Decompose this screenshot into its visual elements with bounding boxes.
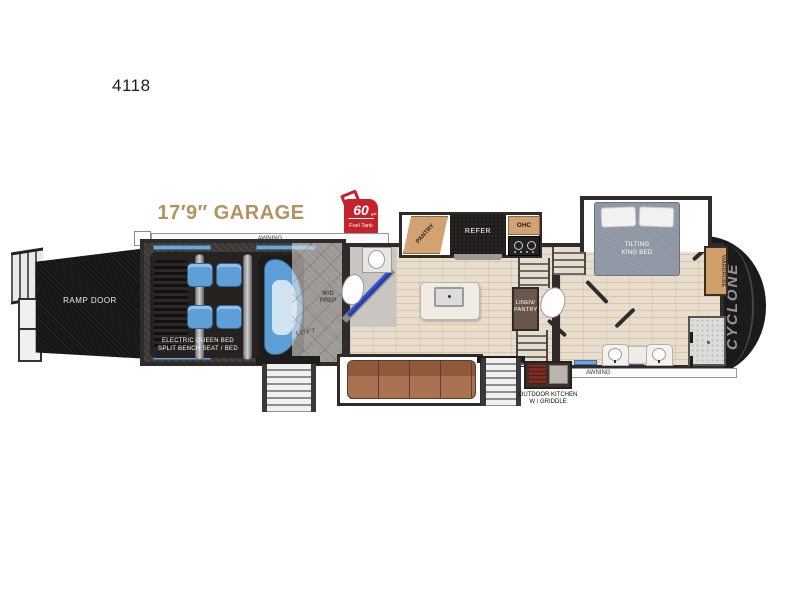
fuel-can-body: 60 gal Fuel Tank: [344, 199, 378, 235]
burner: [514, 241, 523, 250]
bedroom-window: [574, 360, 597, 365]
stairs-upper: [518, 258, 550, 288]
pantry-label: PANTRY: [409, 216, 442, 252]
outdoor-counter: [549, 365, 568, 384]
electric-bed-label: ELECTRIC QUEEN BED SPLIT BENCH SEAT / BE…: [140, 337, 256, 353]
ohc-label: OHC: [509, 217, 539, 234]
floorplan-canvas: 4118 17′9″ GARAGE 60 gal Fuel Tank AWNIN…: [0, 0, 800, 600]
sofa-back: [348, 361, 475, 376]
refer-base: [454, 254, 502, 260]
fuel-tank-icon: 60 gal Fuel Tank: [341, 191, 381, 236]
vanity-center-cabinet: [628, 346, 647, 364]
garage-window-top-left: [153, 245, 211, 250]
king-bed-label-line2: KING BED: [595, 249, 679, 257]
sink-faucet: [614, 360, 616, 363]
bench-cushion: [216, 305, 242, 329]
cooktop-knobs: [514, 251, 534, 253]
vanity-sink-right: [646, 344, 673, 366]
outdoor-kitchen-label-line2: W / GRIDDLE: [506, 399, 590, 406]
pillow: [601, 206, 637, 227]
pillow: [639, 206, 675, 227]
vanity-sink-left: [602, 344, 629, 366]
outdoor-kitchen-label-line1: OUTDOOR KITCHEN: [506, 392, 590, 399]
linen-label-line2: PANTRY: [514, 307, 537, 314]
garage-entry-steps: [262, 364, 316, 412]
cooktop: [508, 236, 540, 256]
bench-cushion: [187, 305, 213, 329]
bench-cushion: [187, 263, 213, 287]
outdoor-kitchen: [524, 361, 572, 389]
fuel-label: Fuel Tank: [344, 223, 378, 229]
bench-cushion: [216, 263, 242, 287]
wardrobe-cabinet: WARDROBE: [704, 246, 728, 296]
electric-bed-label-line1: ELECTRIC QUEEN BED: [140, 337, 256, 345]
electric-bed-label-line2: SPLIT BENCH SEAT / BED: [140, 345, 256, 353]
wd-prep-label: W/D PREP: [314, 291, 342, 305]
refrigerator: REFER: [450, 214, 506, 256]
sink-faucet: [658, 360, 660, 363]
shower-drain: [707, 341, 710, 344]
bath-sink: [368, 250, 385, 269]
ramp-door-label: RAMP DOOR: [40, 296, 140, 305]
sofa-seat: [348, 376, 475, 398]
overhead-cabinet: OHC: [508, 216, 540, 235]
shower: [688, 316, 726, 366]
ramp-door: RAMP DOOR: [30, 244, 144, 362]
linen-label-line1: LINEN/: [514, 300, 537, 307]
fuel-unit: gal: [371, 211, 376, 216]
patio-awning-label: AWNING: [586, 370, 610, 376]
griddle: [529, 365, 546, 384]
wardrobe-label: WARDROBE: [706, 248, 726, 294]
refer-label: REFER: [450, 228, 506, 235]
wd-prep-line1: W/D: [314, 291, 342, 298]
outdoor-kitchen-label: OUTDOOR KITCHEN W / GRIDDLE: [506, 392, 590, 406]
wd-prep-line2: PREP: [314, 298, 342, 305]
sofa: [347, 360, 476, 399]
fuel-underline: [348, 218, 374, 219]
linen-pantry-closet: LINEN/ PANTRY: [512, 287, 539, 331]
island-faucet: [448, 295, 451, 298]
brand-logo: CYCLONE: [724, 250, 754, 362]
shower-hinge: [690, 332, 693, 343]
tilting-king-bed: TILTING KING BED: [594, 202, 680, 276]
garage-length-title: 17′9″ GARAGE: [128, 202, 334, 225]
burner: [527, 241, 536, 250]
king-bed-label-line1: TILTING: [595, 241, 679, 249]
model-number: 4118: [112, 76, 151, 96]
shower-hinge: [690, 356, 693, 367]
